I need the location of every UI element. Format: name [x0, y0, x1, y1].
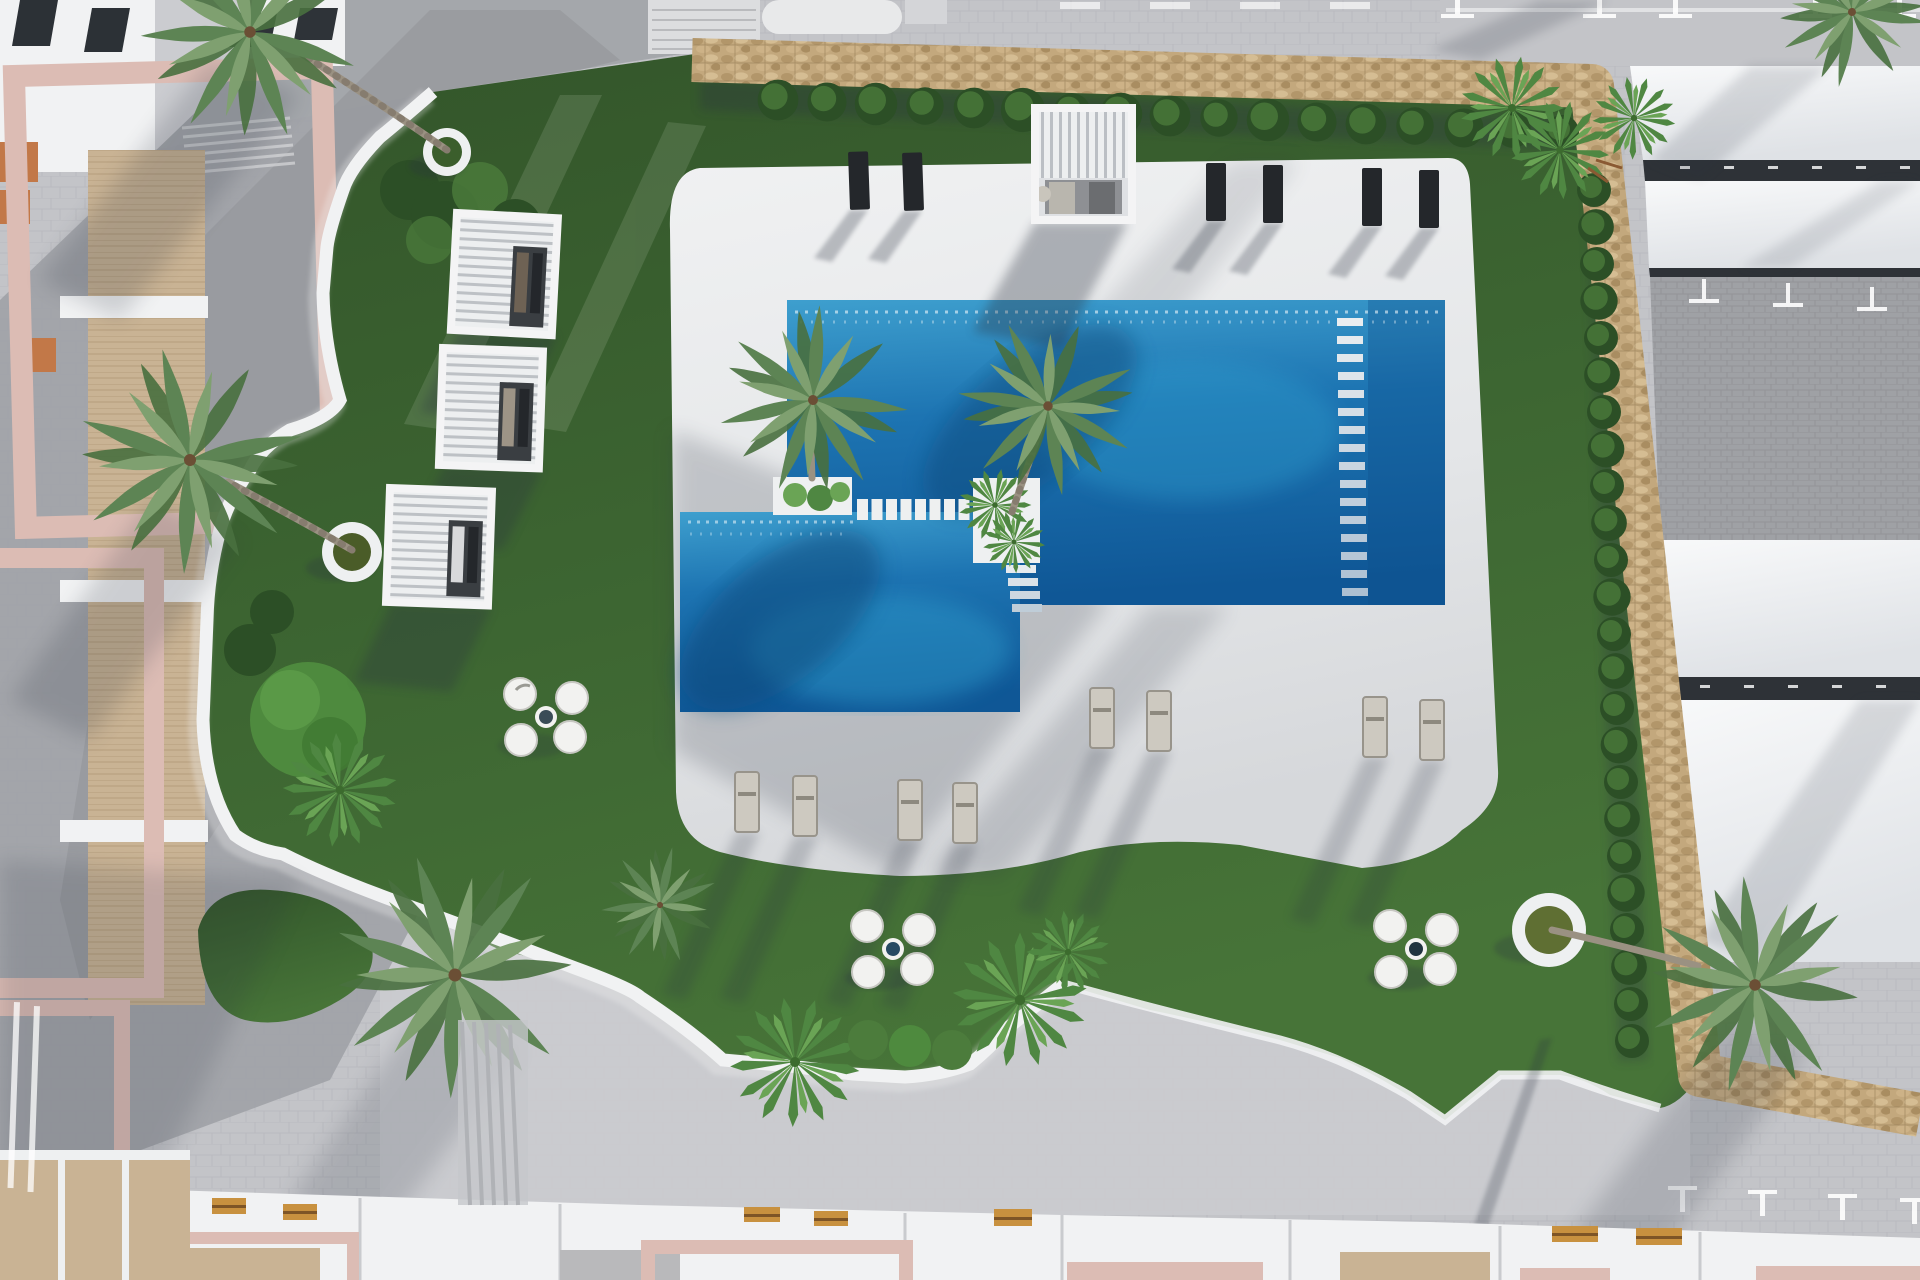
pink-frame-bottom — [1756, 1266, 1920, 1280]
window-glass — [12, 0, 58, 46]
sun-lounger-light — [1090, 688, 1114, 748]
pergola-cabana — [1035, 108, 1132, 220]
cabana-lounger — [1049, 182, 1075, 214]
render-canvas — [0, 0, 1920, 1280]
cabana-lounger — [518, 389, 530, 447]
pergola-cabana — [451, 213, 558, 335]
scene — [0, 0, 1920, 1280]
pool-island-left — [773, 477, 852, 515]
pod-table — [886, 942, 900, 956]
cabana-lounger — [467, 527, 479, 583]
sun-lounger-dark — [1263, 165, 1283, 223]
pink-frame-bottom — [1067, 1262, 1263, 1280]
sun-lounger-light — [953, 783, 977, 843]
sun-lounger-dark — [1206, 163, 1226, 221]
sun-lounger-light — [1363, 697, 1387, 757]
pergola-cabana — [386, 488, 492, 605]
roof-gap-b — [1666, 677, 1920, 700]
pod-table — [539, 710, 553, 724]
cabana-lounger — [502, 388, 516, 446]
window-glass — [84, 8, 130, 52]
pod-table — [1409, 942, 1423, 956]
roof-panel-c — [1660, 540, 1920, 677]
cabana-lounger — [451, 526, 465, 582]
sun-lounger-light — [898, 780, 922, 840]
cabana-lounger — [1089, 182, 1115, 214]
sun-lounger-dark — [848, 151, 870, 210]
sun-lounger-dark — [1419, 170, 1439, 228]
sun-lounger-dark — [902, 152, 924, 211]
sun-lounger-light — [1420, 700, 1444, 760]
sun-lounger-light — [735, 772, 759, 832]
sun-lounger-dark — [1362, 168, 1382, 226]
pink-frame-bottom — [1520, 1268, 1610, 1280]
sun-lounger-light — [793, 776, 817, 836]
sun-lounger-light — [1147, 691, 1171, 751]
roof-gap-line — [1649, 268, 1920, 277]
pergola-cabana — [439, 348, 543, 468]
